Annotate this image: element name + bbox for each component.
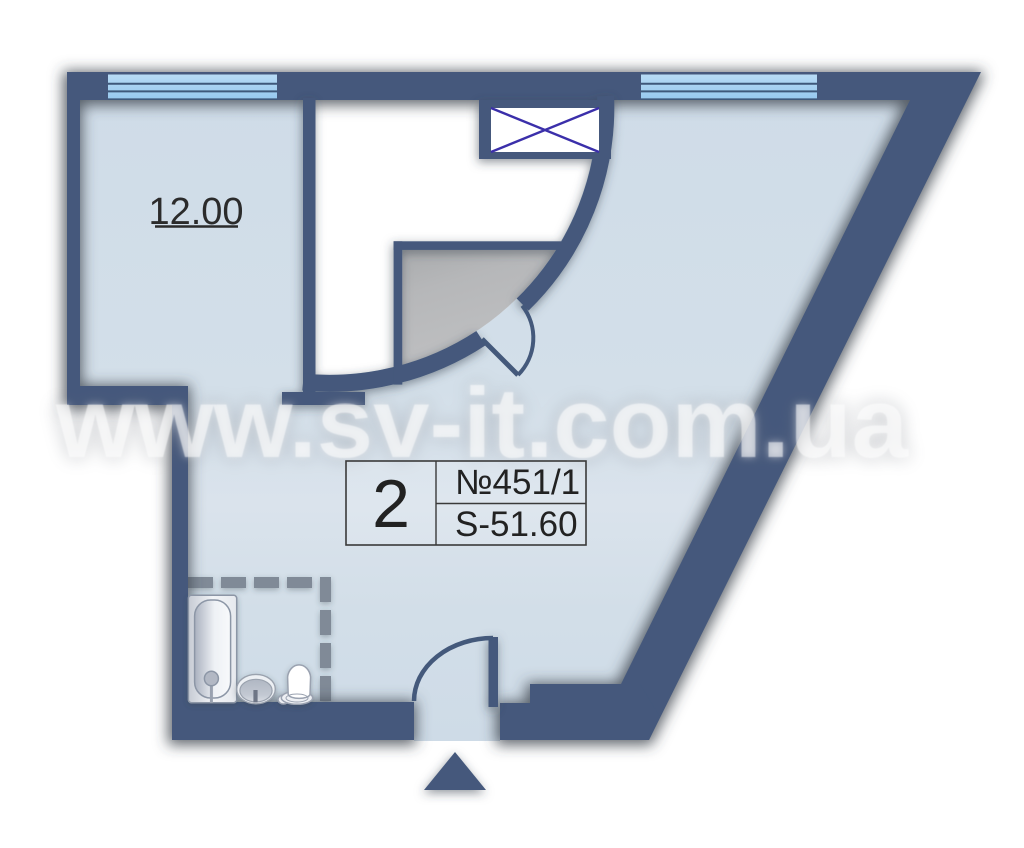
svg-text:2: 2 <box>372 466 410 542</box>
svg-text:S-51.60: S-51.60 <box>455 505 578 544</box>
svg-text:№451/1: №451/1 <box>455 463 580 502</box>
